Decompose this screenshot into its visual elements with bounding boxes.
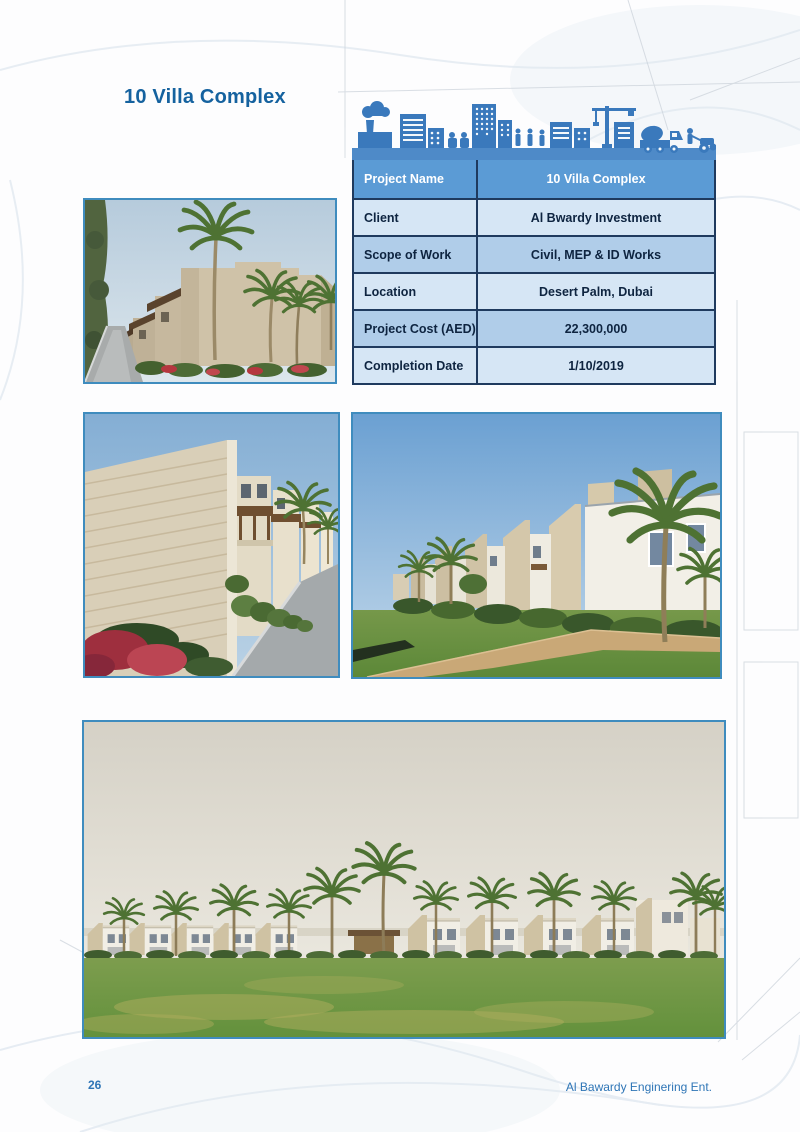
page-title: 10 Villa Complex [124, 86, 286, 109]
completion-label: Completion Date [354, 348, 478, 383]
table-header-value: 10 Villa Complex [478, 160, 714, 198]
footer-company-name: Al Bawardy Enginering Ent. [566, 1080, 712, 1094]
table-row-location: Location Desert Palm, Dubai [354, 272, 714, 309]
table-header-label: Project Name [354, 160, 478, 198]
scope-label: Scope of Work [354, 237, 478, 272]
table-row-scope: Scope of Work Civil, MEP & ID Works [354, 235, 714, 272]
villa-street-view-photo [83, 412, 340, 678]
project-info-table: Project Name 10 Villa Complex Client Al … [352, 160, 716, 385]
villa-exterior-with-palms-photo [83, 198, 337, 384]
construction-skyline-icon [352, 98, 716, 160]
table-row-header: Project Name 10 Villa Complex [354, 160, 714, 198]
villa-complex-panorama-photo [82, 720, 726, 1039]
table-row-client: Client Al Bwardy Investment [354, 198, 714, 235]
cost-label: Project Cost (AED) [354, 311, 478, 346]
cost-value: 22,300,000 [478, 311, 714, 346]
client-label: Client [354, 200, 478, 235]
completion-value: 1/10/2019 [478, 348, 714, 383]
location-value: Desert Palm, Dubai [478, 274, 714, 309]
location-label: Location [354, 274, 478, 309]
client-value: Al Bwardy Investment [478, 200, 714, 235]
table-row-completion: Completion Date 1/10/2019 [354, 346, 714, 383]
villa-row-garden-photo [351, 412, 722, 679]
page-number: 26 [88, 1078, 101, 1092]
scope-value: Civil, MEP & ID Works [478, 237, 714, 272]
table-row-cost: Project Cost (AED) 22,300,000 [354, 309, 714, 346]
